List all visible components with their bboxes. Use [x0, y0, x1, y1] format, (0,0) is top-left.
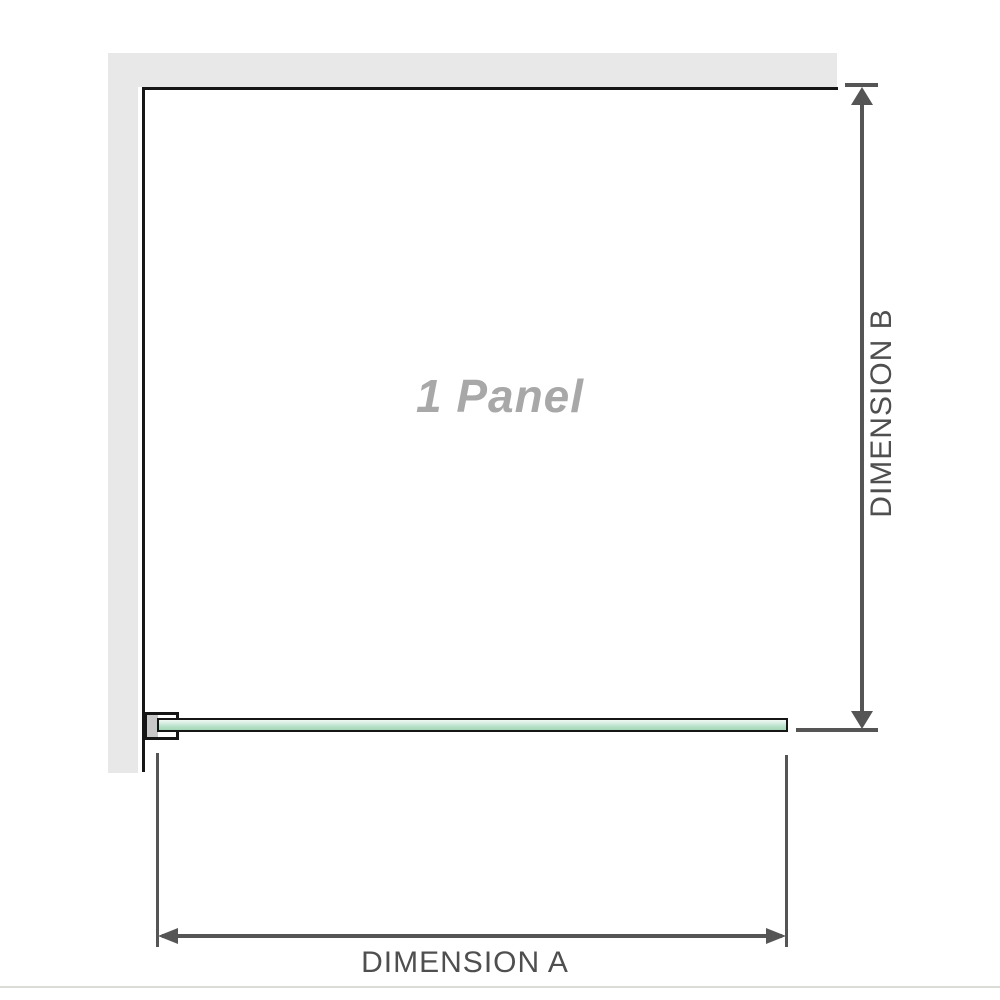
wall-left-strip	[108, 53, 138, 773]
dimension-a-extension-right	[785, 755, 788, 947]
glass-panel-bar	[157, 718, 788, 732]
dimension-b-line	[860, 90, 864, 715]
dimension-b-label: DIMENSION B	[866, 213, 898, 613]
wall-top-strip	[108, 53, 837, 87]
panel-outline-top-edge	[142, 87, 838, 90]
dimension-a-arrowhead-right	[766, 928, 786, 944]
shower-screen-configuration-diagram: 1 Panel DIMENSION B DIMENSION A	[0, 0, 1000, 1000]
page-divider-line	[0, 986, 1000, 988]
dimension-b-arrowhead-top	[851, 87, 873, 105]
panel-outline-left-edge	[142, 87, 145, 772]
panel-count-label: 1 Panel	[300, 368, 700, 424]
dimension-b-arrowhead-bottom	[851, 711, 873, 729]
dimension-a-line	[162, 934, 782, 938]
dimension-a-label: DIMENSION A	[265, 947, 665, 979]
dimension-a-arrowhead-left	[158, 928, 178, 944]
dimension-a-extension-left	[156, 753, 159, 947]
